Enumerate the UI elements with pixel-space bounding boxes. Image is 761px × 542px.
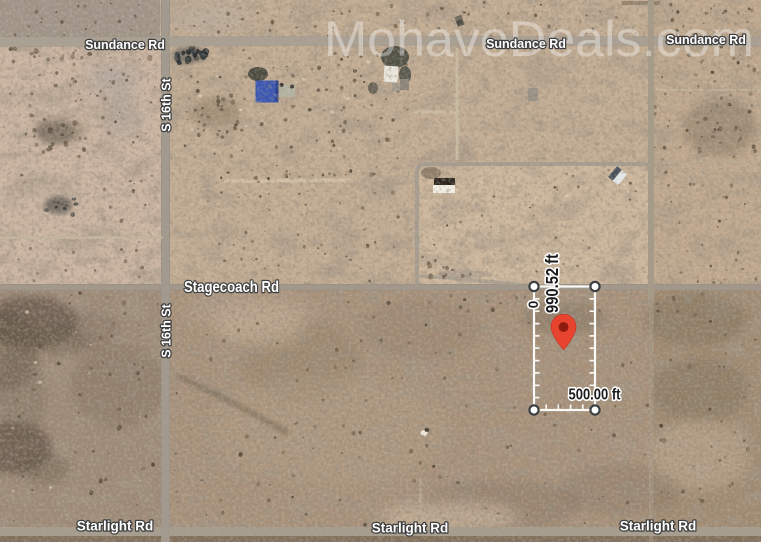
svg-text:Stagecoach Rd: Stagecoach Rd	[184, 279, 279, 296]
svg-text:Sundance Rd: Sundance Rd	[486, 37, 566, 51]
svg-text:Sundance Rd: Sundance Rd	[85, 38, 165, 52]
svg-text:990.52 ft: 990.52 ft	[542, 254, 562, 313]
svg-text:Starlight Rd: Starlight Rd	[372, 521, 449, 536]
svg-text:Sundance Rd: Sundance Rd	[666, 33, 746, 47]
svg-text:S 16th St: S 16th St	[160, 77, 174, 131]
svg-text:Starlight Rd: Starlight Rd	[620, 519, 697, 534]
svg-text:S 16th St: S 16th St	[160, 303, 174, 357]
svg-text:Starlight Rd: Starlight Rd	[77, 519, 154, 534]
svg-text:0: 0	[526, 301, 541, 309]
svg-text:500.00 ft: 500.00 ft	[569, 387, 621, 404]
